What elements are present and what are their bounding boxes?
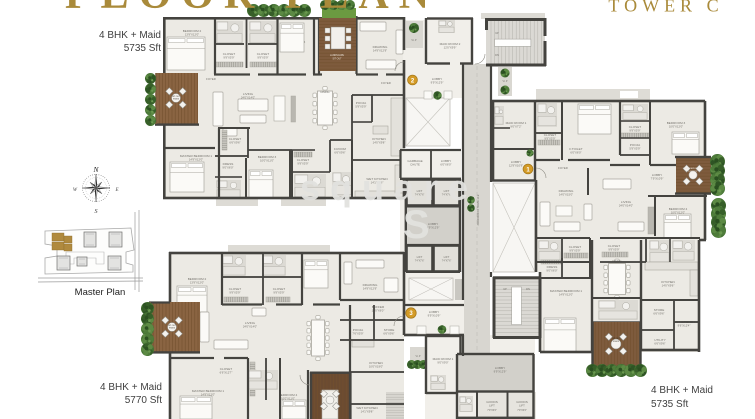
svg-text:V.I.P: V.I.P [411, 39, 417, 42]
svg-text:5'9"X5'9": 5'9"X5'9" [629, 147, 640, 151]
svg-text:LIFT: LIFT [489, 404, 495, 408]
svg-text:7'9"X6'6": 7'9"X6'6" [517, 409, 527, 412]
svg-text:9'9"X5'9": 9'9"X5'9" [608, 248, 619, 252]
svg-text:9'9"X5'9": 9'9"X5'9" [273, 291, 284, 295]
svg-text:14'9"X12'9": 14'9"X12'9" [373, 49, 387, 53]
svg-text:14'9"X12'0": 14'9"X12'0" [559, 293, 573, 297]
svg-text:7'4"X7'6": 7'4"X7'6" [415, 260, 425, 263]
svg-text:7'9"X10'9": 7'9"X10'9" [651, 177, 664, 181]
svg-text:6'6"X9'6": 6'6"X9'6" [383, 332, 394, 336]
svg-text:6'6"X9'6": 6'6"X9'6" [653, 312, 664, 316]
svg-text:4 BHK + Maid: 4 BHK + Maid [99, 30, 161, 41]
svg-text:9'9"X5'9": 9'9"X5'9" [257, 56, 268, 60]
svg-text:FOYER: FOYER [558, 166, 568, 170]
svg-text:FOYER: FOYER [381, 81, 391, 85]
svg-text:5735 Sft: 5735 Sft [651, 399, 688, 410]
svg-text:9'9"X12'9": 9'9"X12'9" [431, 81, 444, 85]
svg-text:7'6"X5'9": 7'6"X5'9" [352, 332, 363, 336]
svg-text:14'1"X9'8": 14'1"X9'8" [361, 410, 374, 414]
svg-text:N: N [92, 165, 99, 174]
svg-text:6'0"X6'0": 6'0"X6'0" [440, 163, 451, 167]
svg-text:14'9"X12'9": 14'9"X12'9" [363, 287, 377, 291]
svg-text:DINING: DINING [320, 90, 329, 94]
svg-text:5770 Sft: 5770 Sft [125, 395, 162, 406]
svg-text:Master Plan: Master Plan [75, 287, 126, 298]
svg-text:9'9"X5'9": 9'9"X5'9" [223, 56, 234, 60]
svg-text:9'6X6'3: 9'6X6'3 [169, 328, 175, 330]
svg-text:LANDSCAPE: LANDSCAPE [330, 54, 344, 57]
svg-text:14'0"X9'6": 14'0"X9'6" [662, 284, 675, 288]
svg-text:9'0"X6'0": 9'0"X6'0" [222, 166, 233, 170]
svg-text:LIFT: LIFT [417, 255, 423, 259]
svg-text:LIFT: LIFT [444, 255, 450, 259]
svg-text:12'9"X10'9": 12'9"X10'9" [509, 164, 523, 168]
svg-text:S: S [403, 203, 430, 247]
svg-text:UP: UP [503, 287, 507, 291]
svg-text:E: E [114, 188, 118, 193]
svg-text:7'9"X6'6": 7'9"X6'6" [487, 409, 497, 412]
svg-text:V.I.P: V.I.P [416, 355, 421, 358]
svg-text:14'0"X15'0": 14'0"X15'0" [559, 193, 573, 197]
svg-text:9'9"X10'9": 9'9"X10'9" [428, 314, 441, 318]
svg-text:24'0"X14'0": 24'0"X14'0" [619, 204, 633, 208]
svg-text:12'0"X9'9": 12'0"X9'9" [444, 46, 457, 50]
svg-text:9'6X6'3: 9'6X6'3 [613, 341, 619, 343]
svg-text:9'6"X12'4": 9'6"X12'4" [678, 324, 691, 328]
svg-text:TOWER C: TOWER C [608, 0, 723, 16]
svg-text:V.I.P: V.I.P [503, 80, 508, 83]
svg-text:9'0"X7'2": 9'0"X7'2" [510, 125, 521, 129]
svg-text:14'9"X12'9": 14'9"X12'9" [688, 171, 698, 173]
svg-text:9'9"X5'9": 9'9"X5'9" [569, 249, 580, 253]
svg-text:9'9"X5'9": 9'9"X5'9" [297, 162, 308, 166]
svg-text:13'9"X12'0": 13'9"X12'0" [185, 33, 199, 37]
svg-text:9'6X6'3: 9'6X6'3 [173, 99, 179, 101]
svg-text:10'0"X12'0": 10'0"X12'0" [669, 125, 683, 129]
svg-text:6'6"X9'6": 6'6"X9'6" [654, 342, 665, 346]
svg-text:9'0"X9'0": 9'0"X9'0" [437, 361, 448, 365]
svg-text:LANDSCAPE SIT OUT: LANDSCAPE SIT OUT [683, 167, 703, 170]
svg-text:4 BHK + Maid: 4 BHK + Maid [651, 385, 713, 396]
svg-text:UP: UP [495, 31, 499, 35]
svg-text:7'4"X7'6": 7'4"X7'6" [442, 260, 452, 263]
svg-text:9'0"X6'0": 9'0"X6'0" [546, 269, 557, 273]
svg-text:square: square [300, 167, 478, 208]
svg-text:CHUTE: CHUTE [410, 163, 420, 167]
svg-text:5735 Sft: 5735 Sft [124, 43, 161, 54]
svg-text:S: S [95, 209, 98, 215]
svg-text:10'0"X19'0": 10'0"X19'0" [369, 365, 383, 369]
svg-text:FLOOR PLAN: FLOOR PLAN [65, 0, 439, 18]
svg-text:6'0"X6'0": 6'0"X6'0" [570, 151, 581, 155]
svg-text:6'6"X9'6": 6'6"X9'6" [334, 151, 345, 155]
svg-text:13'9"X12'0": 13'9"X12'0" [190, 281, 204, 285]
svg-text:SIT OUT: SIT OUT [612, 338, 621, 340]
svg-text:5'9"X5'9": 5'9"X5'9" [355, 105, 366, 109]
svg-text:9'9"X5'9": 9'9"X5'9" [629, 129, 640, 133]
svg-text:6'6"X12'7": 6'6"X12'7" [220, 371, 233, 375]
svg-text:14'9"X12'0": 14'9"X12'0" [189, 158, 203, 162]
svg-text:FOYER: FOYER [206, 77, 216, 81]
svg-text:4 BHK + Maid: 4 BHK + Maid [100, 382, 162, 393]
svg-text:DN: DN [495, 53, 499, 57]
svg-text:LANDSCAPE SIT OUT: LANDSCAPE SIT OUT [321, 390, 340, 393]
svg-text:9'9"X12'9": 9'9"X12'9" [494, 370, 507, 374]
svg-text:DN: DN [526, 287, 530, 291]
svg-text:SIT OUT: SIT OUT [332, 59, 342, 61]
svg-text:LIFT: LIFT [519, 404, 525, 408]
svg-text:9'9"X5'9": 9'9"X5'9" [229, 291, 240, 295]
svg-text:14'0"X9'8": 14'0"X9'8" [373, 141, 386, 145]
svg-text:24'0"X14'0": 24'0"X14'0" [243, 325, 257, 329]
svg-text:10'0"X11'0": 10'0"X11'0" [260, 159, 274, 163]
svg-text:6'6"X9'6": 6'6"X9'6" [229, 141, 240, 145]
